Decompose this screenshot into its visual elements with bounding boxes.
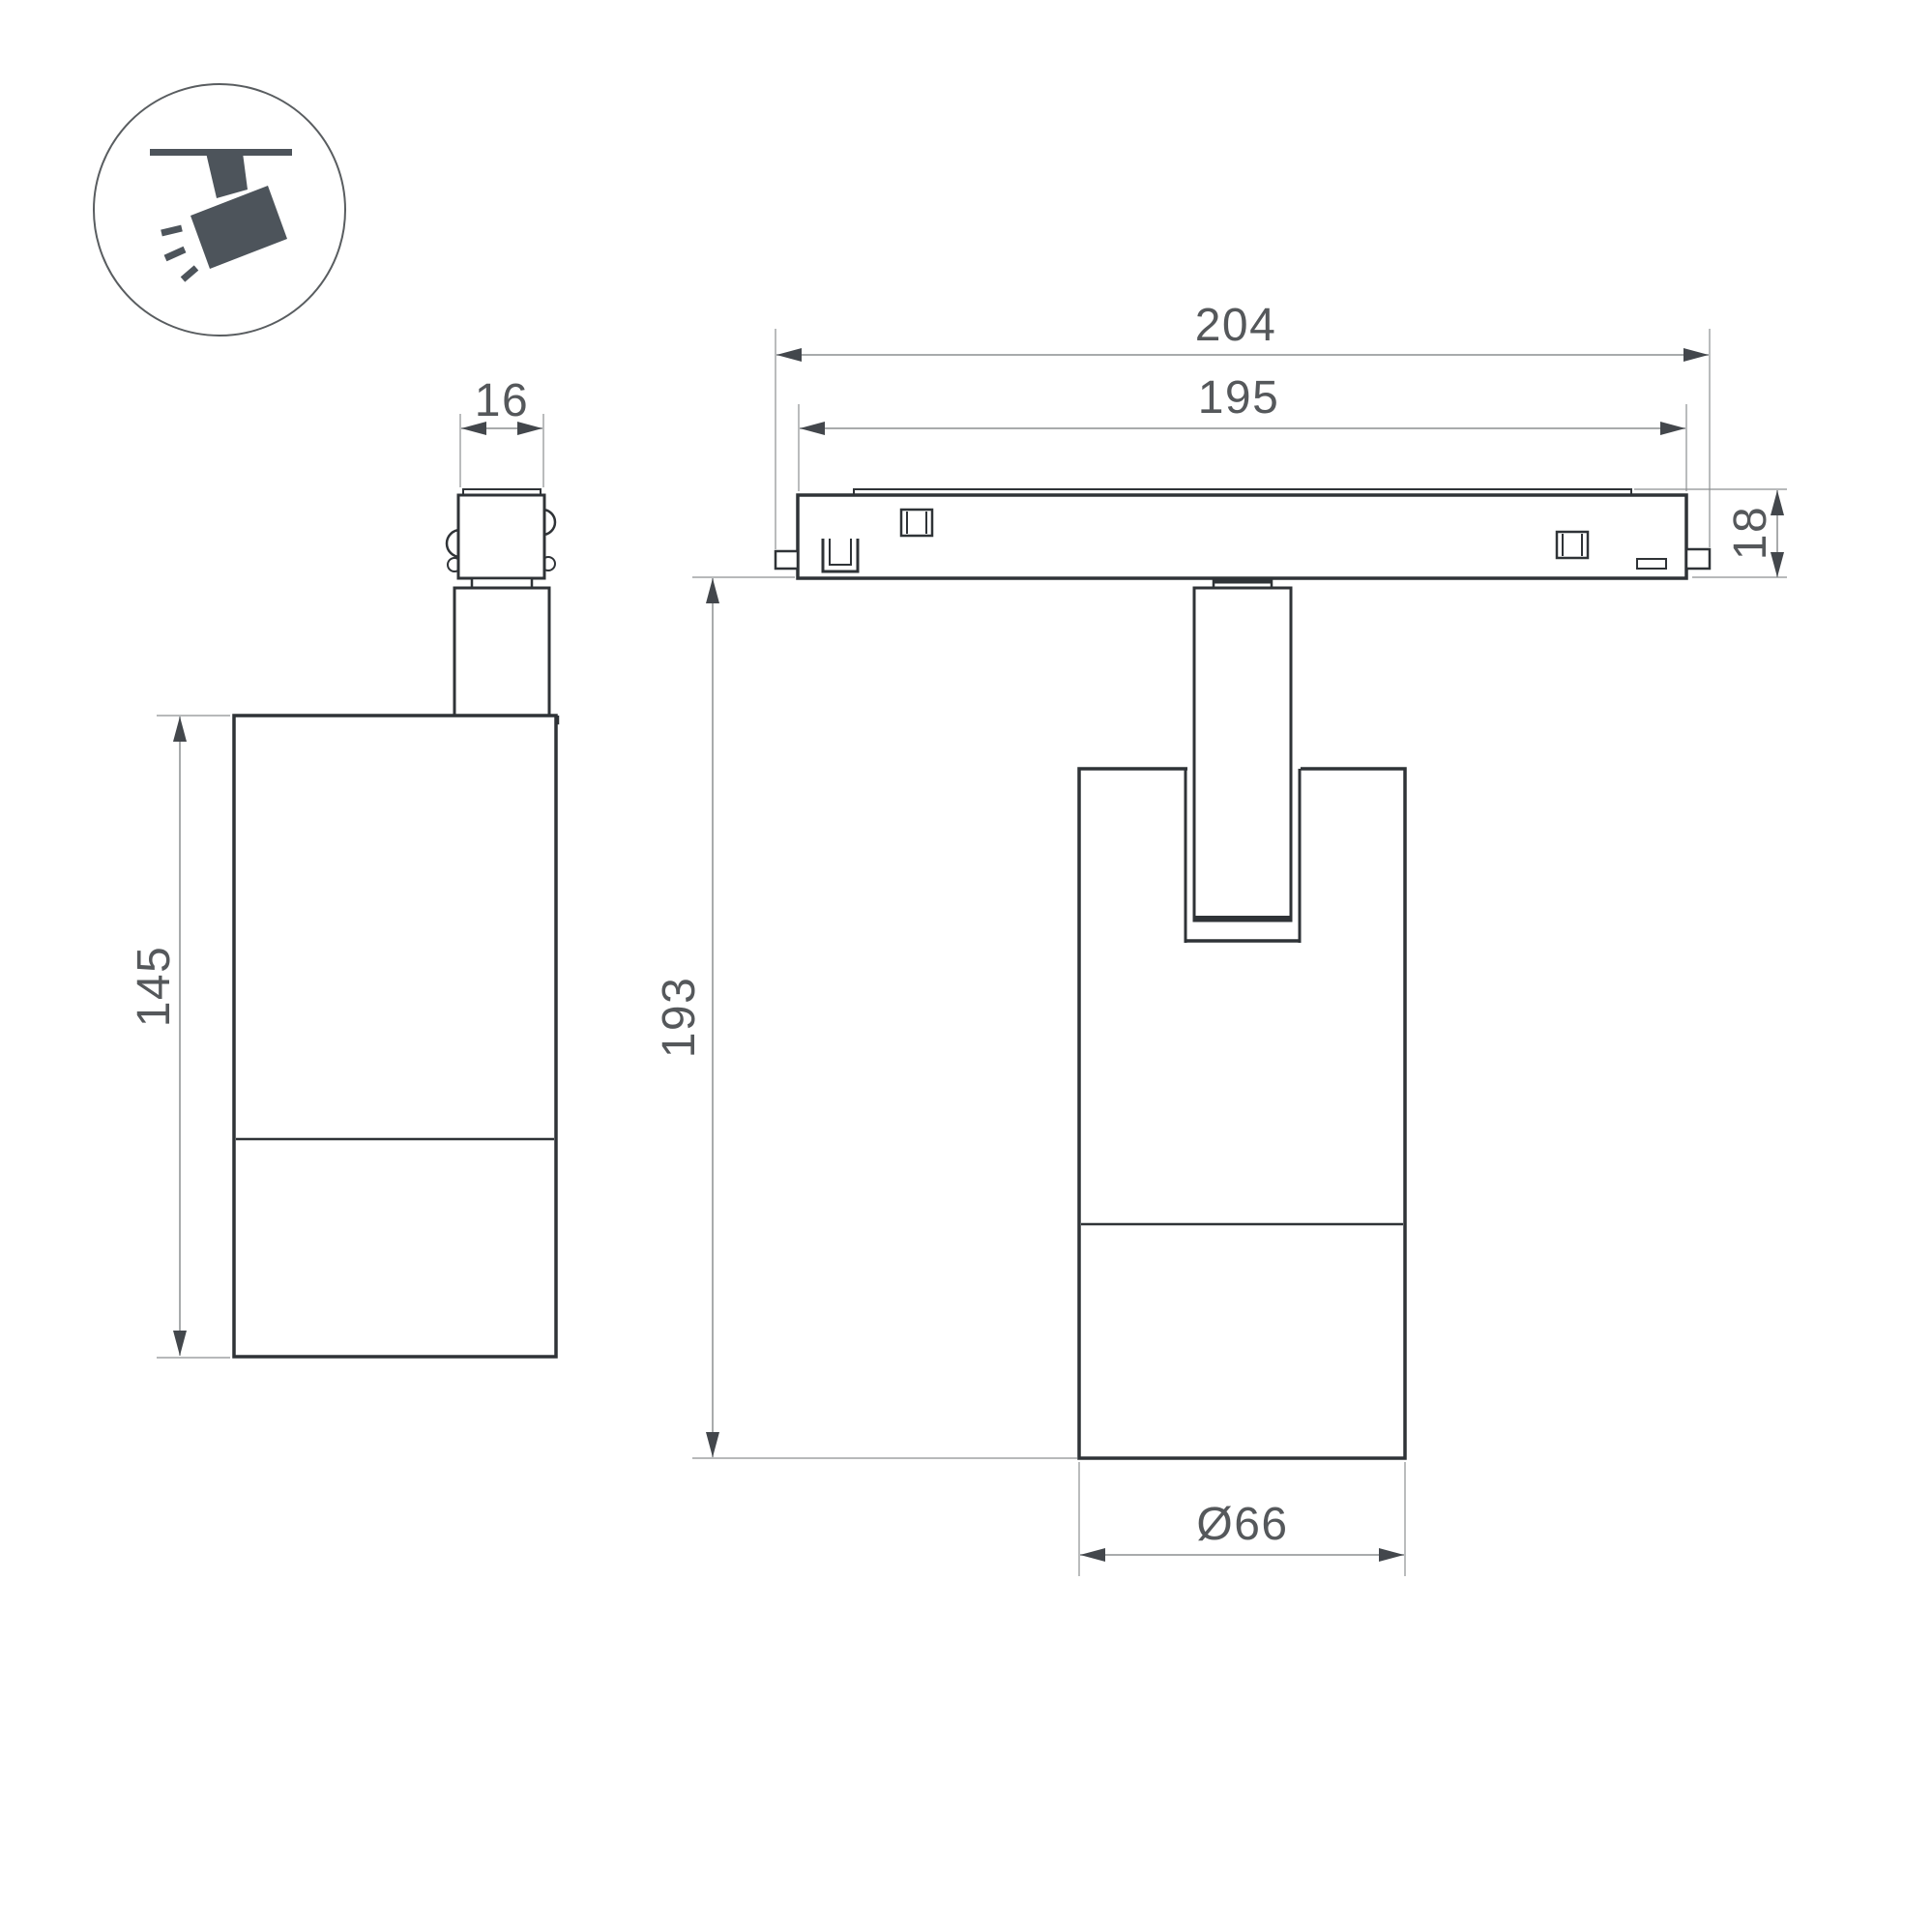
label-overall-height: 193 — [654, 977, 705, 1059]
track-spotlight-icon — [94, 84, 345, 336]
housing-side — [234, 716, 556, 1357]
label-overall-width: 204 — [1195, 300, 1277, 351]
side-view — [234, 489, 558, 1357]
track-latch-right — [1686, 549, 1710, 569]
track-adapter — [458, 495, 544, 578]
track-latch-left — [776, 551, 798, 569]
front-view — [776, 489, 1710, 1458]
icon-stem — [206, 153, 248, 198]
technical-drawing: 204 195 16 18 193 145 Ø66 — [0, 0, 1932, 1932]
icon-lamp-body — [190, 186, 287, 269]
label-adapter-width: 16 — [475, 375, 529, 426]
label-body-width: 195 — [1198, 372, 1280, 424]
icon-light-rays — [161, 228, 196, 279]
label-housing-diameter: Ø66 — [1196, 1499, 1288, 1550]
label-housing-height: 145 — [129, 946, 180, 1028]
stem-side — [454, 588, 549, 716]
stem-front — [1194, 588, 1291, 921]
label-track-height: 18 — [1725, 506, 1776, 560]
